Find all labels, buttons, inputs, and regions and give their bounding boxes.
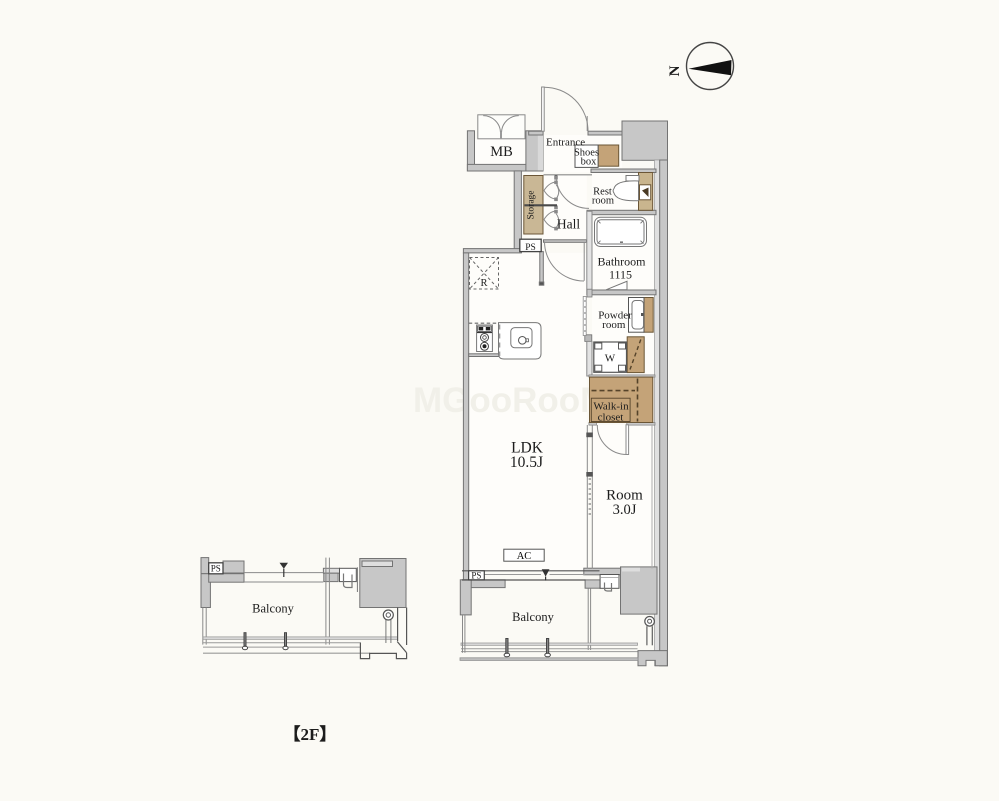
svg-text:room: room — [602, 319, 626, 331]
svg-text:MGooRooM: MGooRooM — [413, 381, 609, 420]
svg-text:10.5J: 10.5J — [510, 454, 543, 471]
svg-text:N: N — [667, 65, 683, 76]
svg-text:W: W — [605, 353, 616, 365]
svg-text:Balcony: Balcony — [252, 602, 294, 616]
svg-text:room: room — [592, 196, 614, 207]
svg-text:Hall: Hall — [557, 217, 580, 232]
svg-text:【2F】: 【2F】 — [284, 724, 337, 744]
svg-text:3.0J: 3.0J — [613, 502, 637, 518]
svg-text:Storage: Storage — [527, 190, 537, 219]
svg-text:box: box — [581, 157, 598, 168]
svg-text:closet: closet — [598, 412, 624, 424]
svg-text:MB: MB — [490, 144, 513, 160]
svg-text:Balcony: Balcony — [512, 610, 554, 624]
svg-text:Bathroom: Bathroom — [598, 255, 647, 269]
svg-text:PS: PS — [525, 243, 536, 253]
svg-text:PS: PS — [471, 571, 481, 581]
svg-text:AC: AC — [517, 551, 532, 562]
svg-text:PS: PS — [211, 564, 221, 574]
svg-text:1115: 1115 — [609, 268, 632, 282]
svg-text:R: R — [480, 278, 487, 289]
